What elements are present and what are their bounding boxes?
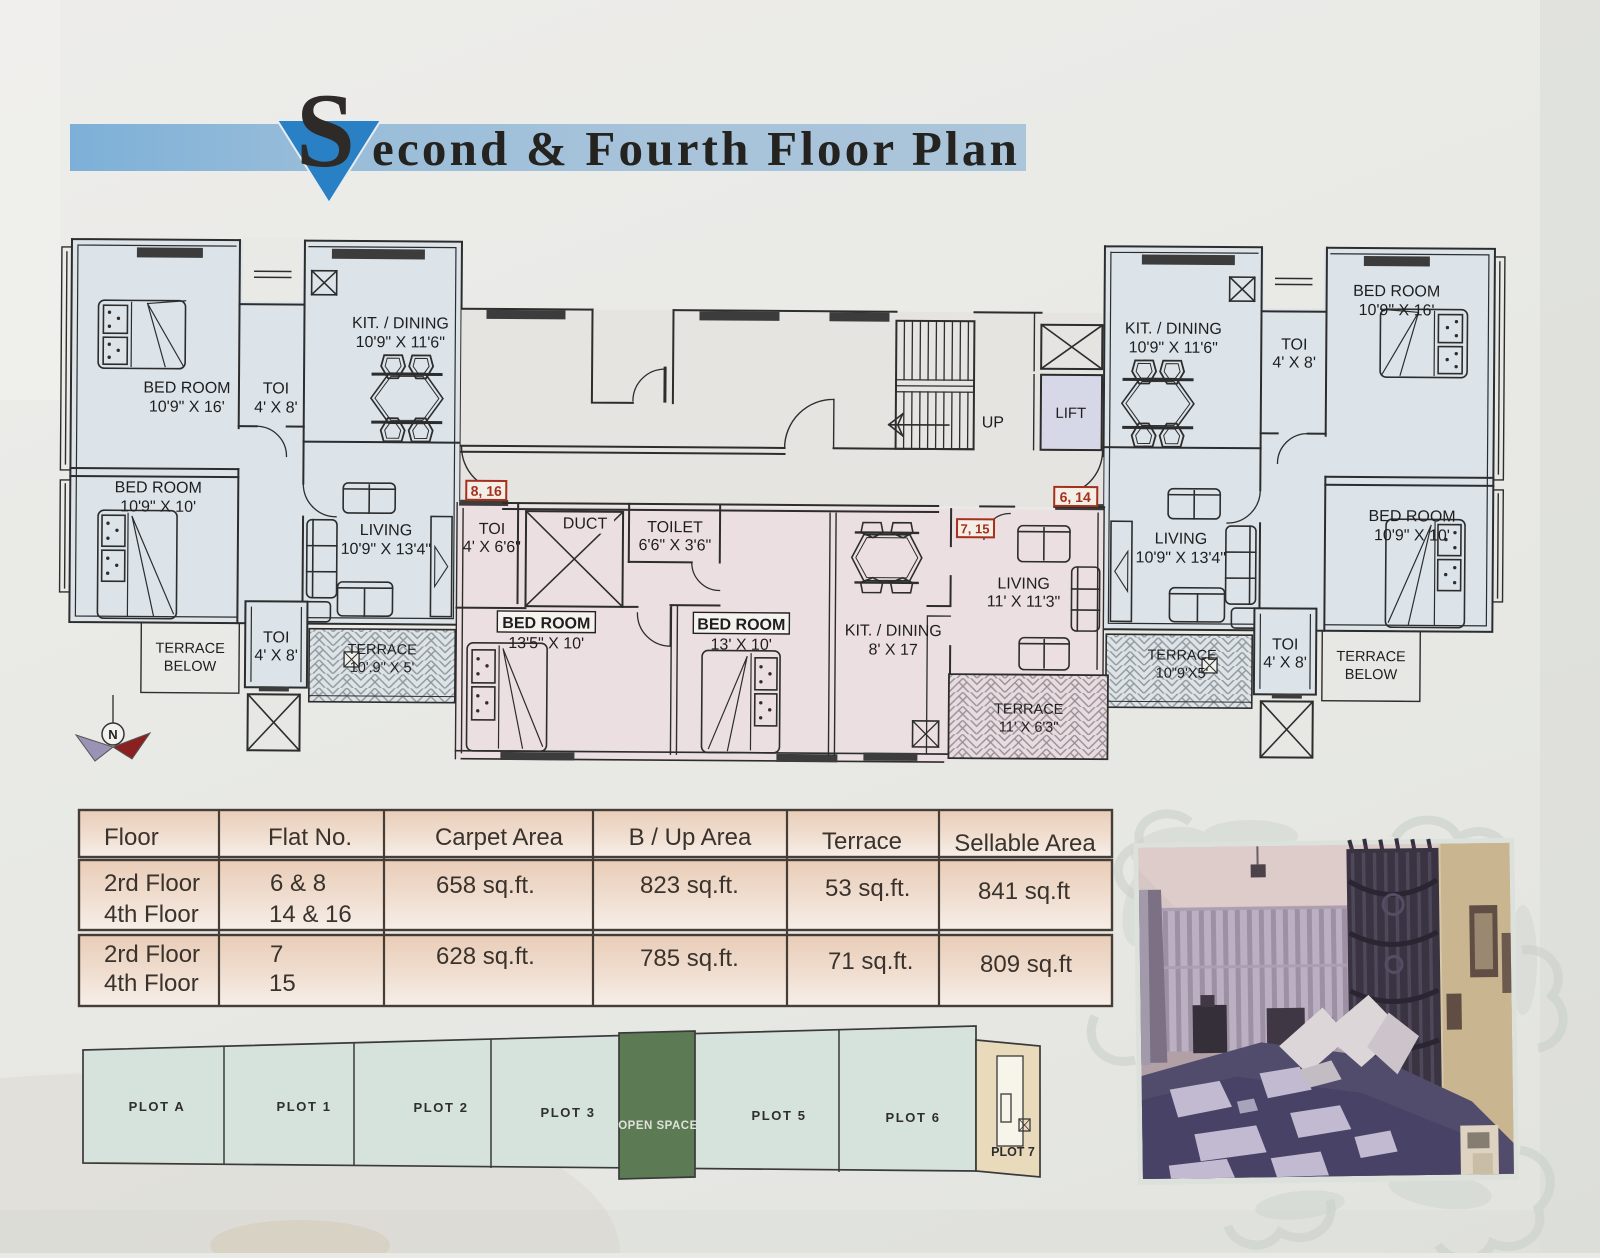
svg-text:11' X 6'3": 11' X 6'3" [999, 719, 1059, 735]
svg-text:Flat No.: Flat No. [268, 824, 352, 851]
svg-text:N: N [108, 727, 117, 742]
svg-text:13' X 10': 13' X 10' [710, 636, 771, 653]
svg-text:TOI: TOI [1272, 636, 1298, 653]
svg-text:TERRACE: TERRACE [155, 641, 225, 657]
svg-text:TERRACE: TERRACE [1147, 647, 1217, 663]
svg-text:14 & 16: 14 & 16 [269, 901, 352, 928]
svg-text:6'6" X 3'6": 6'6" X 3'6" [639, 537, 712, 555]
svg-text:KIT. / DINING: KIT. / DINING [845, 622, 942, 640]
svg-text:4' X 8': 4' X 8' [254, 647, 298, 664]
svg-text:B / Up Area: B / Up Area [629, 824, 752, 851]
svg-text:PLOT 7: PLOT 7 [991, 1145, 1035, 1159]
svg-text:4' X 8': 4' X 8' [1263, 654, 1307, 671]
svg-text:TOI: TOI [1281, 336, 1307, 353]
svg-text:TOI: TOI [263, 380, 289, 397]
svg-text:841 sq.ft: 841 sq.ft [978, 878, 1070, 905]
svg-text:2rd Floor: 2rd Floor [104, 941, 200, 968]
svg-text:6, 14: 6, 14 [1060, 489, 1091, 505]
svg-text:7, 15: 7, 15 [960, 521, 989, 536]
svg-text:13'5" X 10': 13'5" X 10' [508, 635, 584, 653]
svg-text:7: 7 [270, 941, 283, 968]
svg-text:71 sq.ft.: 71 sq.ft. [828, 948, 913, 975]
svg-text:PLOT 5: PLOT 5 [751, 1108, 806, 1123]
svg-text:LIVING: LIVING [1155, 531, 1208, 548]
svg-text:OPEN SPACE: OPEN SPACE [618, 1120, 698, 1132]
svg-text:10'9" X 16': 10'9" X 16' [1359, 302, 1435, 320]
svg-text:TOILET: TOILET [647, 519, 703, 536]
svg-text:LIVING: LIVING [360, 522, 413, 539]
svg-text:8, 16: 8, 16 [471, 483, 502, 499]
svg-text:PLOT 1: PLOT 1 [276, 1099, 331, 1114]
svg-text:4th Floor: 4th Floor [104, 970, 199, 997]
svg-text:UP: UP [982, 414, 1004, 431]
svg-text:TERRACE: TERRACE [1336, 649, 1406, 665]
svg-text:KIT. / DINING: KIT. / DINING [1125, 320, 1222, 338]
svg-text:Sellable Area: Sellable Area [954, 830, 1096, 857]
svg-text:785 sq.ft.: 785 sq.ft. [640, 945, 739, 972]
svg-text:TERRACE: TERRACE [994, 701, 1064, 717]
svg-text:809 sq.ft: 809 sq.ft [980, 951, 1072, 978]
svg-text:10'.9" X 5': 10'.9" X 5' [350, 660, 415, 676]
svg-text:4' X 8': 4' X 8' [1272, 354, 1316, 371]
svg-text:BED ROOM: BED ROOM [143, 379, 230, 397]
svg-text:TERRACE: TERRACE [347, 642, 417, 658]
svg-text:10'9" X 11'6": 10'9" X 11'6" [356, 334, 445, 352]
svg-text:6 & 8: 6 & 8 [270, 870, 326, 897]
svg-text:PLOT 2: PLOT 2 [413, 1100, 468, 1115]
svg-text:10'9" X 13'4": 10'9" X 13'4" [1136, 549, 1227, 567]
svg-text:BELOW: BELOW [164, 659, 217, 675]
svg-text:BED ROOM: BED ROOM [1353, 283, 1440, 301]
svg-text:4' X 6'6": 4' X 6'6" [463, 539, 521, 556]
svg-text:Terrace: Terrace [822, 828, 902, 855]
svg-text:2rd Floor: 2rd Floor [104, 870, 200, 897]
svg-text:Carpet Area: Carpet Area [435, 824, 564, 851]
svg-text:BED ROOM: BED ROOM [697, 616, 785, 634]
svg-text:PLOT A: PLOT A [129, 1099, 186, 1114]
svg-text:10'9" X 10': 10'9" X 10' [1374, 527, 1450, 545]
svg-text:BED ROOM: BED ROOM [115, 479, 202, 497]
svg-text:10'9" X 10': 10'9" X 10' [120, 498, 196, 516]
svg-text:PLOT 3: PLOT 3 [540, 1105, 595, 1120]
svg-text:BED ROOM: BED ROOM [502, 615, 590, 633]
svg-text:8' X 17: 8' X 17 [868, 642, 918, 659]
svg-text:LIVING: LIVING [997, 575, 1050, 592]
svg-text:10'9" X 11'6": 10'9" X 11'6" [1129, 339, 1218, 357]
svg-text:LIFT: LIFT [1055, 405, 1086, 422]
svg-text:BED ROOM: BED ROOM [1368, 508, 1455, 526]
svg-text:DUCT: DUCT [563, 515, 608, 532]
svg-text:Floor: Floor [104, 824, 159, 851]
svg-text:11' X 11'3": 11' X 11'3" [987, 593, 1061, 611]
svg-text:PLOT 6: PLOT 6 [885, 1110, 940, 1125]
svg-text:10"9'X5': 10"9'X5' [1156, 666, 1209, 682]
svg-text:10'9" X 13'4": 10'9" X 13'4" [341, 541, 432, 559]
svg-text:econd & Fourth Floor Plan: econd & Fourth Floor Plan [372, 121, 1020, 176]
svg-text:628 sq.ft.: 628 sq.ft. [436, 943, 535, 970]
svg-text:TOI: TOI [479, 521, 505, 538]
svg-text:658 sq.ft.: 658 sq.ft. [436, 872, 535, 899]
svg-text:BELOW: BELOW [1345, 667, 1398, 683]
svg-text:4' X 8': 4' X 8' [254, 399, 298, 416]
svg-text:4th Floor: 4th Floor [104, 901, 199, 928]
svg-text:10'9" X 16': 10'9" X 16' [149, 399, 225, 417]
svg-text:15: 15 [269, 970, 296, 997]
svg-text:S: S [296, 72, 355, 189]
svg-text:KIT. / DINING: KIT. / DINING [352, 315, 449, 333]
svg-text:823 sq.ft.: 823 sq.ft. [640, 872, 739, 899]
svg-text:53 sq.ft.: 53 sq.ft. [825, 875, 910, 902]
svg-text:TOI: TOI [263, 629, 289, 646]
